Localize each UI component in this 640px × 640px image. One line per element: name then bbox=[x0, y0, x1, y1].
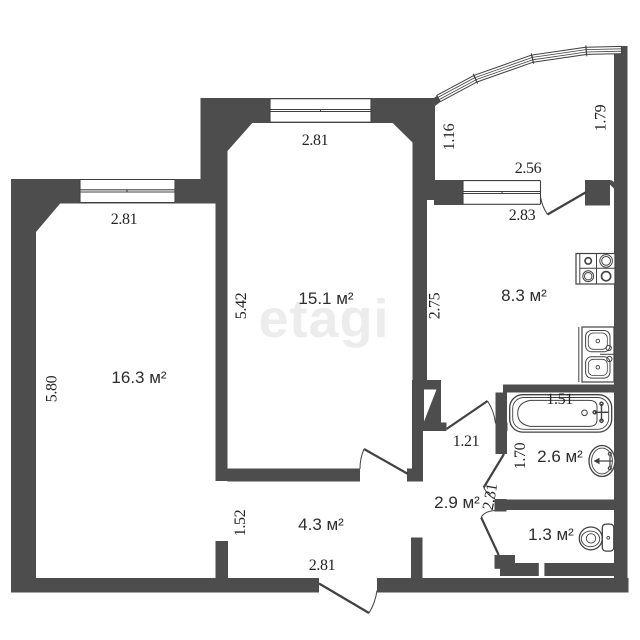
svg-text:1.70: 1.70 bbox=[512, 442, 529, 469]
svg-text:5.80: 5.80 bbox=[44, 375, 61, 402]
svg-text:1.3 м²: 1.3 м² bbox=[528, 525, 574, 544]
svg-text:2.9 м²: 2.9 м² bbox=[434, 493, 480, 512]
svg-text:4.3 м²: 4.3 м² bbox=[298, 515, 344, 534]
svg-text:1.79: 1.79 bbox=[593, 104, 610, 131]
svg-text:1.21: 1.21 bbox=[453, 433, 480, 450]
svg-text:8.3 м²: 8.3 м² bbox=[501, 286, 547, 305]
svg-text:5.42: 5.42 bbox=[233, 292, 250, 319]
svg-text:2.75: 2.75 bbox=[427, 292, 444, 319]
svg-text:1.51: 1.51 bbox=[546, 391, 573, 408]
svg-text:2.83: 2.83 bbox=[509, 207, 536, 224]
svg-text:2.6 м²: 2.6 м² bbox=[537, 447, 583, 466]
svg-text:1.16: 1.16 bbox=[441, 123, 458, 150]
svg-text:1.52: 1.52 bbox=[232, 509, 249, 536]
svg-text:16.3 м²: 16.3 м² bbox=[111, 368, 166, 387]
svg-text:2.81: 2.81 bbox=[302, 132, 329, 149]
svg-text:2.56: 2.56 bbox=[515, 160, 542, 177]
svg-text:2.81: 2.81 bbox=[309, 557, 336, 574]
svg-text:2.81: 2.81 bbox=[111, 211, 138, 228]
svg-text:15.1 м²: 15.1 м² bbox=[298, 289, 353, 308]
